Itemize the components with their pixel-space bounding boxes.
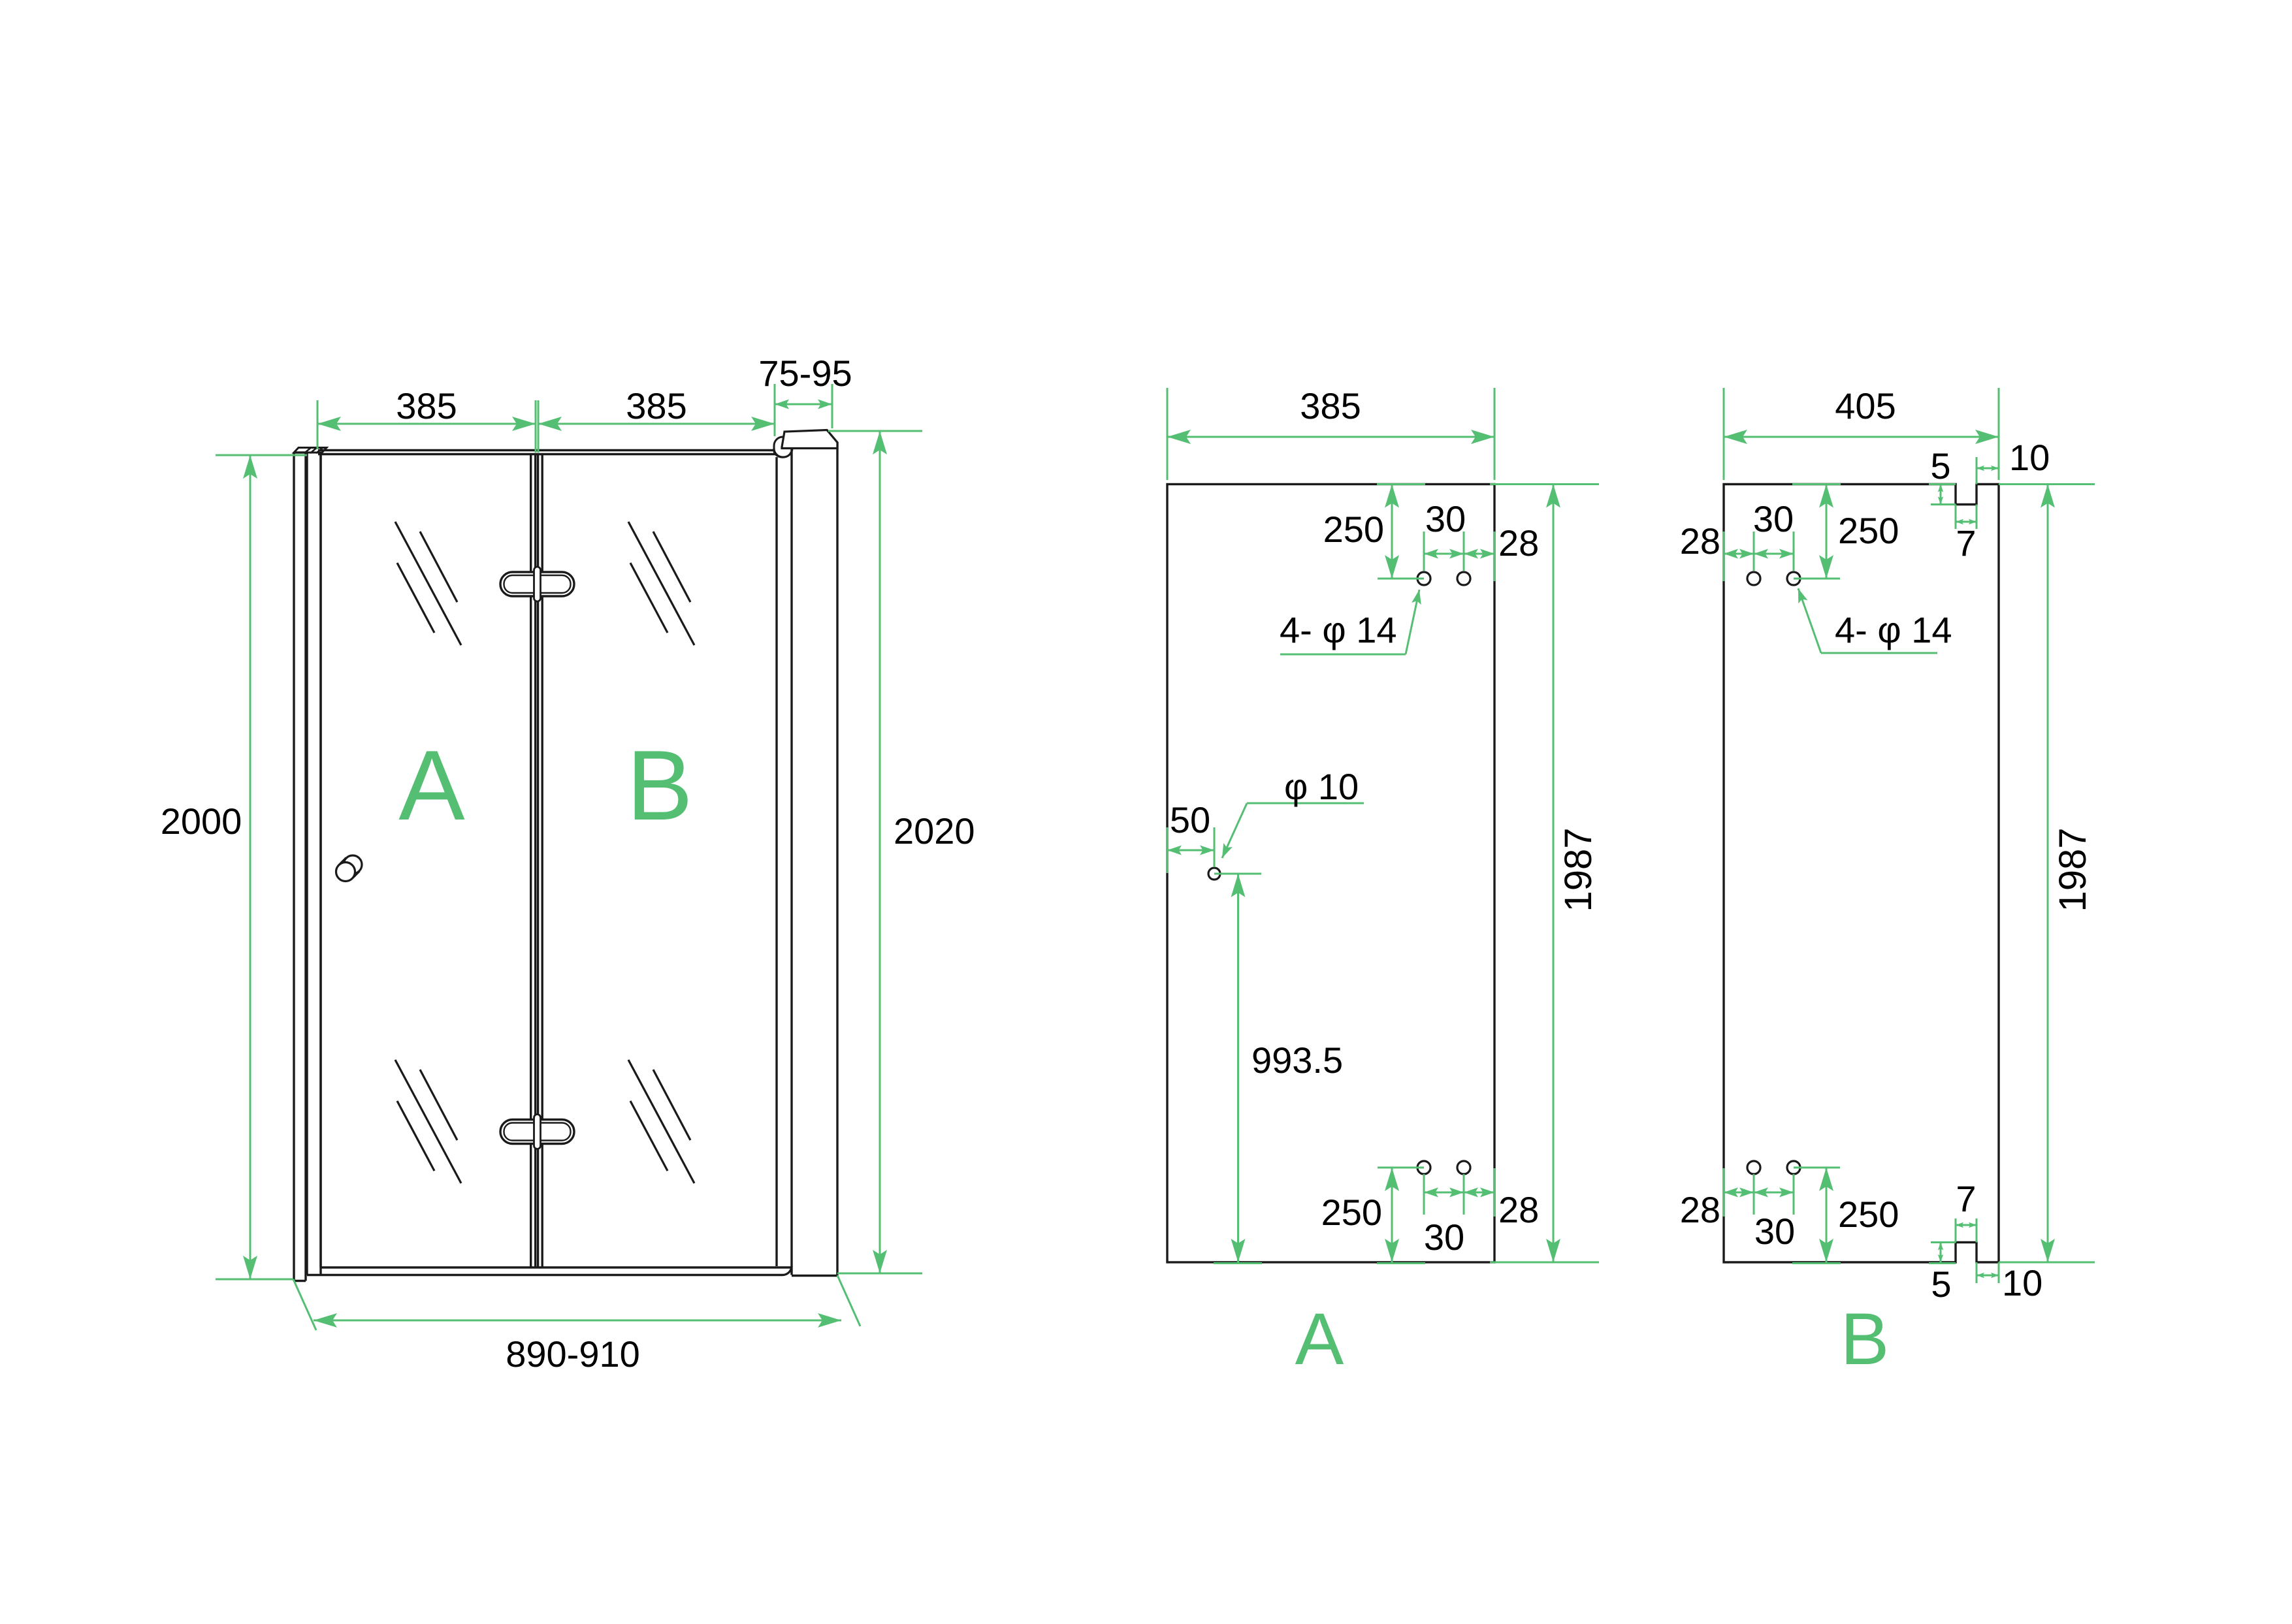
svg-text:28: 28	[1498, 1189, 1539, 1230]
svg-text:28: 28	[1680, 1189, 1720, 1230]
svg-text:A: A	[398, 730, 465, 841]
svg-text:30: 30	[1754, 1211, 1795, 1252]
svg-text:B: B	[626, 730, 692, 841]
svg-text:385: 385	[1300, 385, 1361, 426]
svg-text:5: 5	[1931, 1264, 1951, 1305]
svg-text:5: 5	[1930, 445, 1950, 486]
svg-text:10: 10	[2002, 1262, 2042, 1303]
svg-text:75-95: 75-95	[758, 353, 852, 394]
svg-text:50: 50	[1170, 799, 1210, 840]
svg-text:250: 250	[1323, 509, 1384, 550]
svg-text:385: 385	[626, 385, 686, 426]
svg-text:1987: 1987	[1557, 827, 1600, 912]
svg-text:1987: 1987	[2052, 827, 2094, 912]
svg-text:2000: 2000	[161, 801, 242, 842]
svg-text:φ 10: φ 10	[1284, 766, 1359, 807]
svg-text:250: 250	[1838, 510, 1899, 551]
svg-text:10: 10	[2009, 437, 2050, 478]
svg-text:B: B	[1841, 1298, 1890, 1380]
svg-text:30: 30	[1753, 498, 1794, 539]
svg-text:993.5: 993.5	[1251, 1040, 1343, 1081]
svg-text:4- φ 14: 4- φ 14	[1835, 609, 1952, 650]
svg-text:30: 30	[1424, 1217, 1464, 1258]
svg-text:A: A	[1295, 1298, 1344, 1380]
svg-text:7: 7	[1956, 522, 1976, 564]
svg-text:250: 250	[1838, 1194, 1899, 1235]
svg-text:30: 30	[1425, 498, 1466, 539]
svg-text:28: 28	[1680, 520, 1720, 562]
svg-text:890-910: 890-910	[506, 1333, 640, 1375]
svg-text:2020: 2020	[894, 810, 975, 852]
svg-text:7: 7	[1956, 1178, 1976, 1219]
svg-text:405: 405	[1835, 385, 1896, 426]
svg-text:385: 385	[396, 385, 457, 426]
svg-text:250: 250	[1321, 1192, 1382, 1233]
svg-text:28: 28	[1498, 522, 1539, 564]
svg-text:4- φ 14: 4- φ 14	[1280, 609, 1397, 650]
